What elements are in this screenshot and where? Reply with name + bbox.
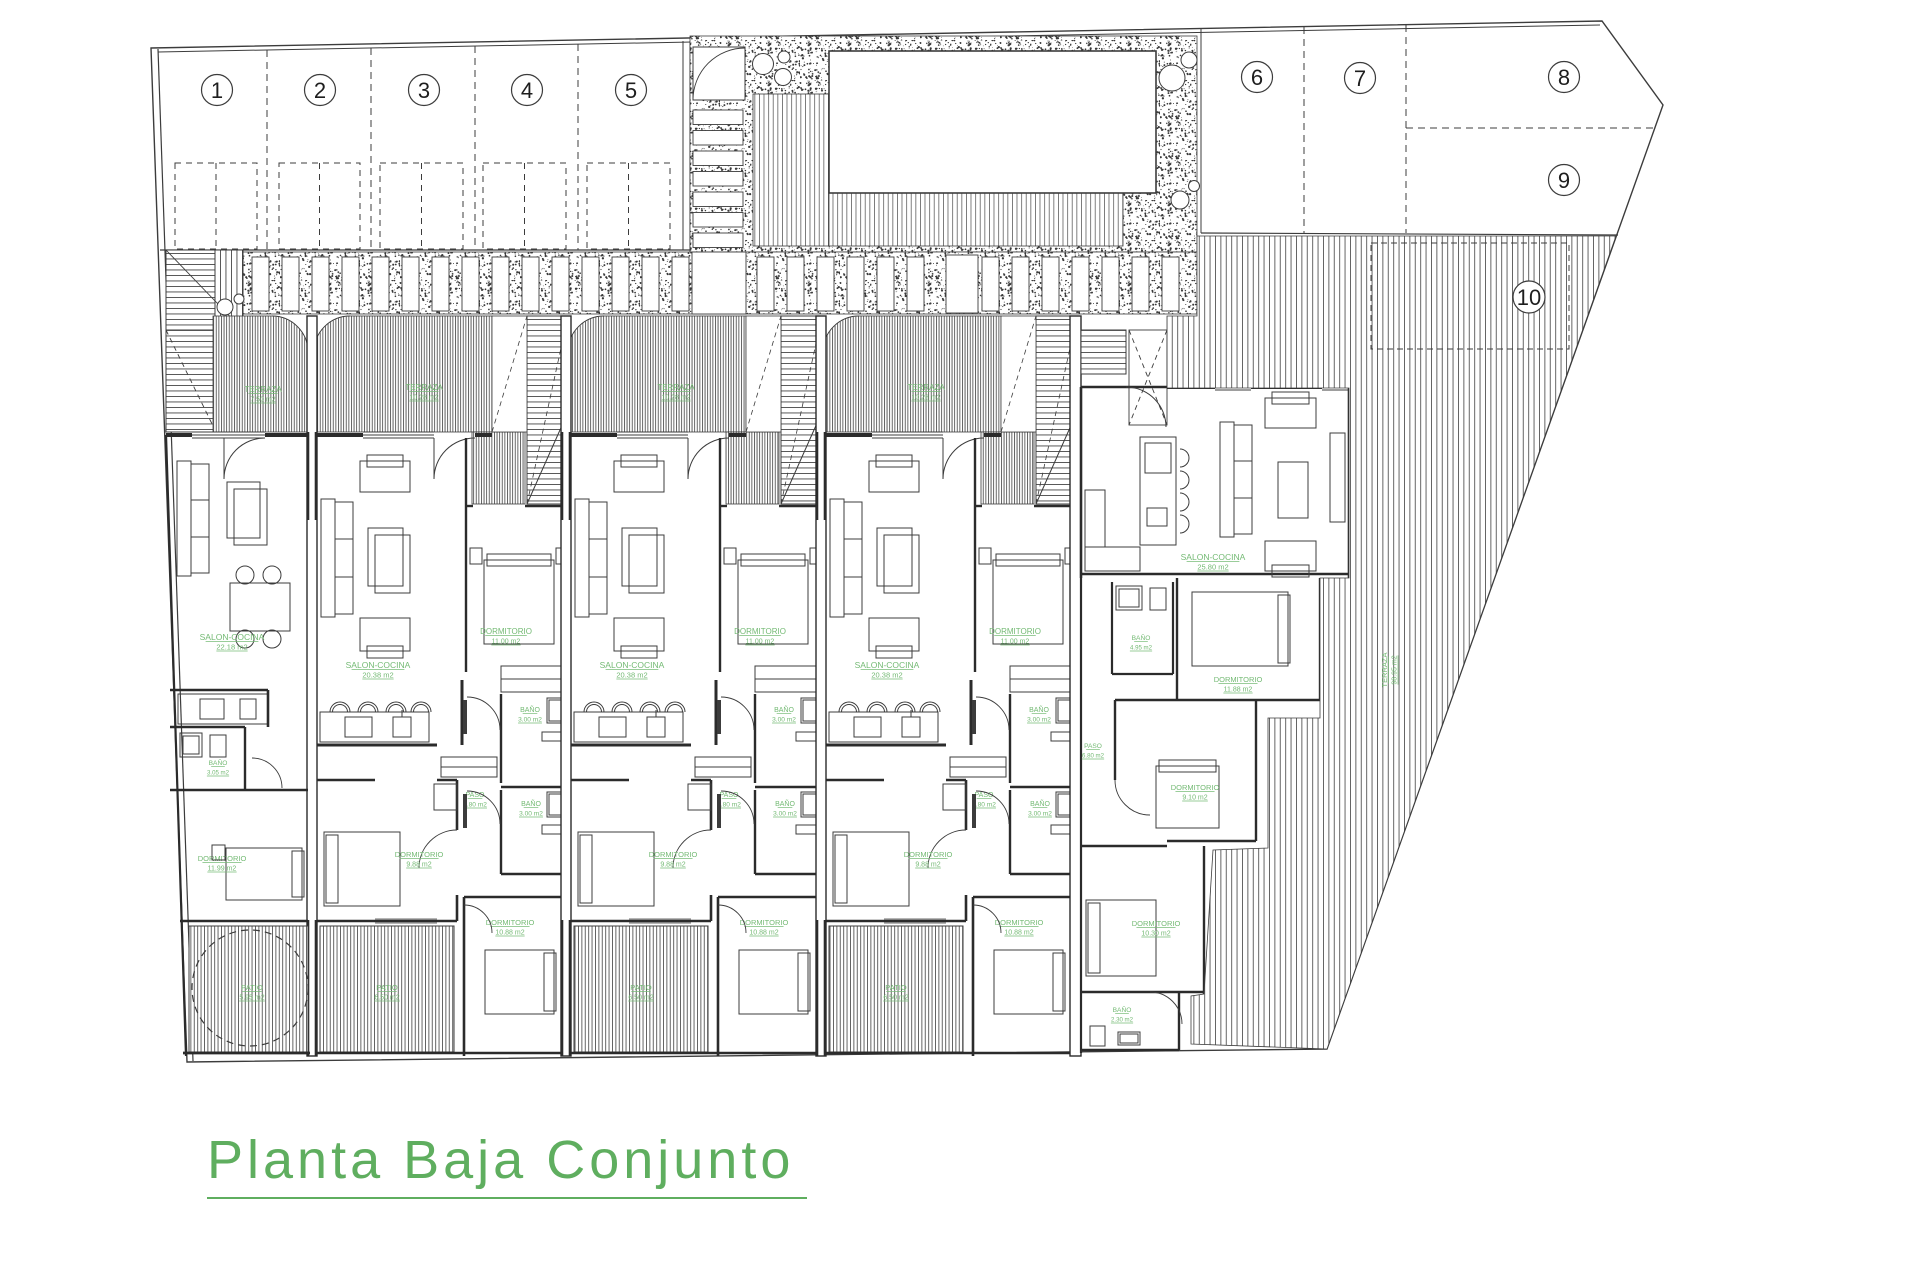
svg-text:20.38 m2: 20.38 m2 — [616, 671, 647, 680]
svg-text:PASO: PASO — [466, 792, 485, 799]
svg-text:7.50 m2: 7.50 m2 — [250, 397, 275, 404]
svg-text:Planta Baja Conjunto: Planta Baja Conjunto — [207, 1130, 794, 1190]
svg-text:6.50 m2: 6.50 m2 — [628, 995, 653, 1002]
svg-text:1: 1 — [211, 78, 223, 103]
svg-text:BAÑO: BAÑO — [521, 799, 541, 808]
svg-text:PATIO: PATIO — [630, 983, 652, 992]
svg-text:10.28 m2: 10.28 m2 — [661, 395, 690, 402]
svg-text:DORMITORIO: DORMITORIO — [734, 627, 786, 636]
svg-text:BAÑO: BAÑO — [1113, 1005, 1132, 1014]
svg-text:SALON-COCINA: SALON-COCINA — [600, 660, 665, 670]
svg-text:DORMITORIO: DORMITORIO — [740, 918, 789, 927]
svg-text:DORMITORIO: DORMITORIO — [486, 918, 535, 927]
svg-text:PATIO: PATIO — [241, 983, 263, 992]
svg-text:3.05 m2: 3.05 m2 — [207, 770, 230, 777]
svg-text:PASO: PASO — [1084, 743, 1102, 750]
svg-text:SALON-COCINA: SALON-COCINA — [855, 660, 920, 670]
svg-text:DORMITORIO: DORMITORIO — [995, 918, 1044, 927]
svg-text:SALON-COCINA: SALON-COCINA — [200, 632, 265, 642]
svg-text:BAÑO: BAÑO — [775, 799, 795, 808]
svg-text:3.00 m2: 3.00 m2 — [519, 811, 543, 818]
svg-text:BAÑO: BAÑO — [1132, 633, 1151, 642]
svg-text:DORMITORIO: DORMITORIO — [395, 850, 444, 859]
svg-text:BAÑO: BAÑO — [209, 758, 228, 767]
svg-text:6.80 m2: 6.80 m2 — [1082, 753, 1105, 760]
svg-text:BAÑO: BAÑO — [1029, 705, 1049, 714]
svg-text:PATIO: PATIO — [376, 983, 398, 992]
svg-text:10.88 m2: 10.88 m2 — [1004, 930, 1033, 937]
svg-text:DORMITORIO: DORMITORIO — [989, 627, 1041, 636]
svg-text:5.95 m2: 5.95 m2 — [239, 995, 264, 1002]
svg-text:DORMITORIO: DORMITORIO — [904, 850, 953, 859]
svg-text:DORMITORIO: DORMITORIO — [480, 627, 532, 636]
svg-text:10.28 m2: 10.28 m2 — [911, 395, 940, 402]
svg-text:9.88 m2: 9.88 m2 — [660, 862, 685, 869]
svg-text:11.88 m2: 11.88 m2 — [1224, 687, 1253, 694]
svg-text:DORMITORIO: DORMITORIO — [649, 850, 698, 859]
svg-text:9.88 m2: 9.88 m2 — [406, 862, 431, 869]
svg-text:TERRAZA: TERRAZA — [405, 383, 443, 392]
svg-text:TERRAZA: TERRAZA — [657, 383, 695, 392]
svg-text:20.38 m2: 20.38 m2 — [362, 671, 393, 680]
svg-text:22.18 m2: 22.18 m2 — [216, 643, 247, 652]
svg-text:8: 8 — [1558, 65, 1570, 90]
svg-text:3.00 m2: 3.00 m2 — [773, 811, 797, 818]
svg-text:SALON-COCINA: SALON-COCINA — [346, 660, 411, 670]
svg-text:4.95 m2: 4.95 m2 — [1130, 645, 1153, 652]
svg-text:DORMITORIO: DORMITORIO — [1132, 919, 1181, 928]
svg-text:3: 3 — [418, 78, 430, 103]
svg-text:10: 10 — [1517, 285, 1541, 310]
svg-text:4: 4 — [521, 78, 533, 103]
svg-text:3.00 m2: 3.00 m2 — [772, 717, 796, 724]
svg-text:9.10 m2: 9.10 m2 — [1182, 795, 1207, 802]
svg-text:9.88 m2: 9.88 m2 — [915, 862, 940, 869]
svg-text:PATIO: PATIO — [885, 983, 907, 992]
svg-text:10.88 m2: 10.88 m2 — [749, 930, 778, 937]
svg-text:PASO: PASO — [720, 792, 739, 799]
svg-text:9: 9 — [1558, 168, 1570, 193]
svg-text:6.50 m2: 6.50 m2 — [374, 995, 399, 1002]
svg-text:BAÑO: BAÑO — [774, 705, 794, 714]
svg-text:TERRAZA: TERRAZA — [1380, 652, 1389, 687]
svg-text:5: 5 — [625, 78, 637, 103]
svg-text:11.99 m2: 11.99 m2 — [208, 866, 237, 873]
svg-text:TERRAZA: TERRAZA — [907, 383, 945, 392]
svg-text:6: 6 — [1251, 65, 1263, 90]
svg-text:11.00 m2: 11.00 m2 — [1001, 639, 1030, 646]
svg-text:BAÑO: BAÑO — [1030, 799, 1050, 808]
svg-text:10.88 m2: 10.88 m2 — [495, 930, 524, 937]
svg-text:3.00 m2: 3.00 m2 — [518, 717, 542, 724]
svg-text:DORMITORIO: DORMITORIO — [198, 854, 247, 863]
svg-text:2.30 m2: 2.30 m2 — [1111, 1017, 1134, 1024]
svg-text:2: 2 — [314, 78, 326, 103]
svg-text:SALON-COCINA: SALON-COCINA — [1181, 552, 1246, 562]
svg-text:3.00 m2: 3.00 m2 — [1028, 811, 1052, 818]
svg-text:TERRAZA: TERRAZA — [244, 385, 282, 394]
svg-text:11.00 m2: 11.00 m2 — [492, 639, 521, 646]
svg-text:6.50 m2: 6.50 m2 — [883, 995, 908, 1002]
svg-text:25.80 m2: 25.80 m2 — [1197, 563, 1228, 572]
svg-text:7: 7 — [1354, 66, 1366, 91]
svg-text:11.00 m2: 11.00 m2 — [746, 639, 775, 646]
svg-text:BAÑO: BAÑO — [520, 705, 540, 714]
svg-text:20.38 m2: 20.38 m2 — [871, 671, 902, 680]
svg-text:PASO: PASO — [975, 792, 994, 799]
svg-text:10.28 m2: 10.28 m2 — [409, 395, 438, 402]
svg-text:98.95 m2: 98.95 m2 — [1392, 655, 1399, 684]
svg-text:3.00 m2: 3.00 m2 — [1027, 717, 1051, 724]
svg-text:DORMITORIO: DORMITORIO — [1171, 783, 1220, 792]
svg-text:DORMITORIO: DORMITORIO — [1214, 675, 1263, 684]
svg-text:10.30 m2: 10.30 m2 — [1141, 931, 1170, 938]
